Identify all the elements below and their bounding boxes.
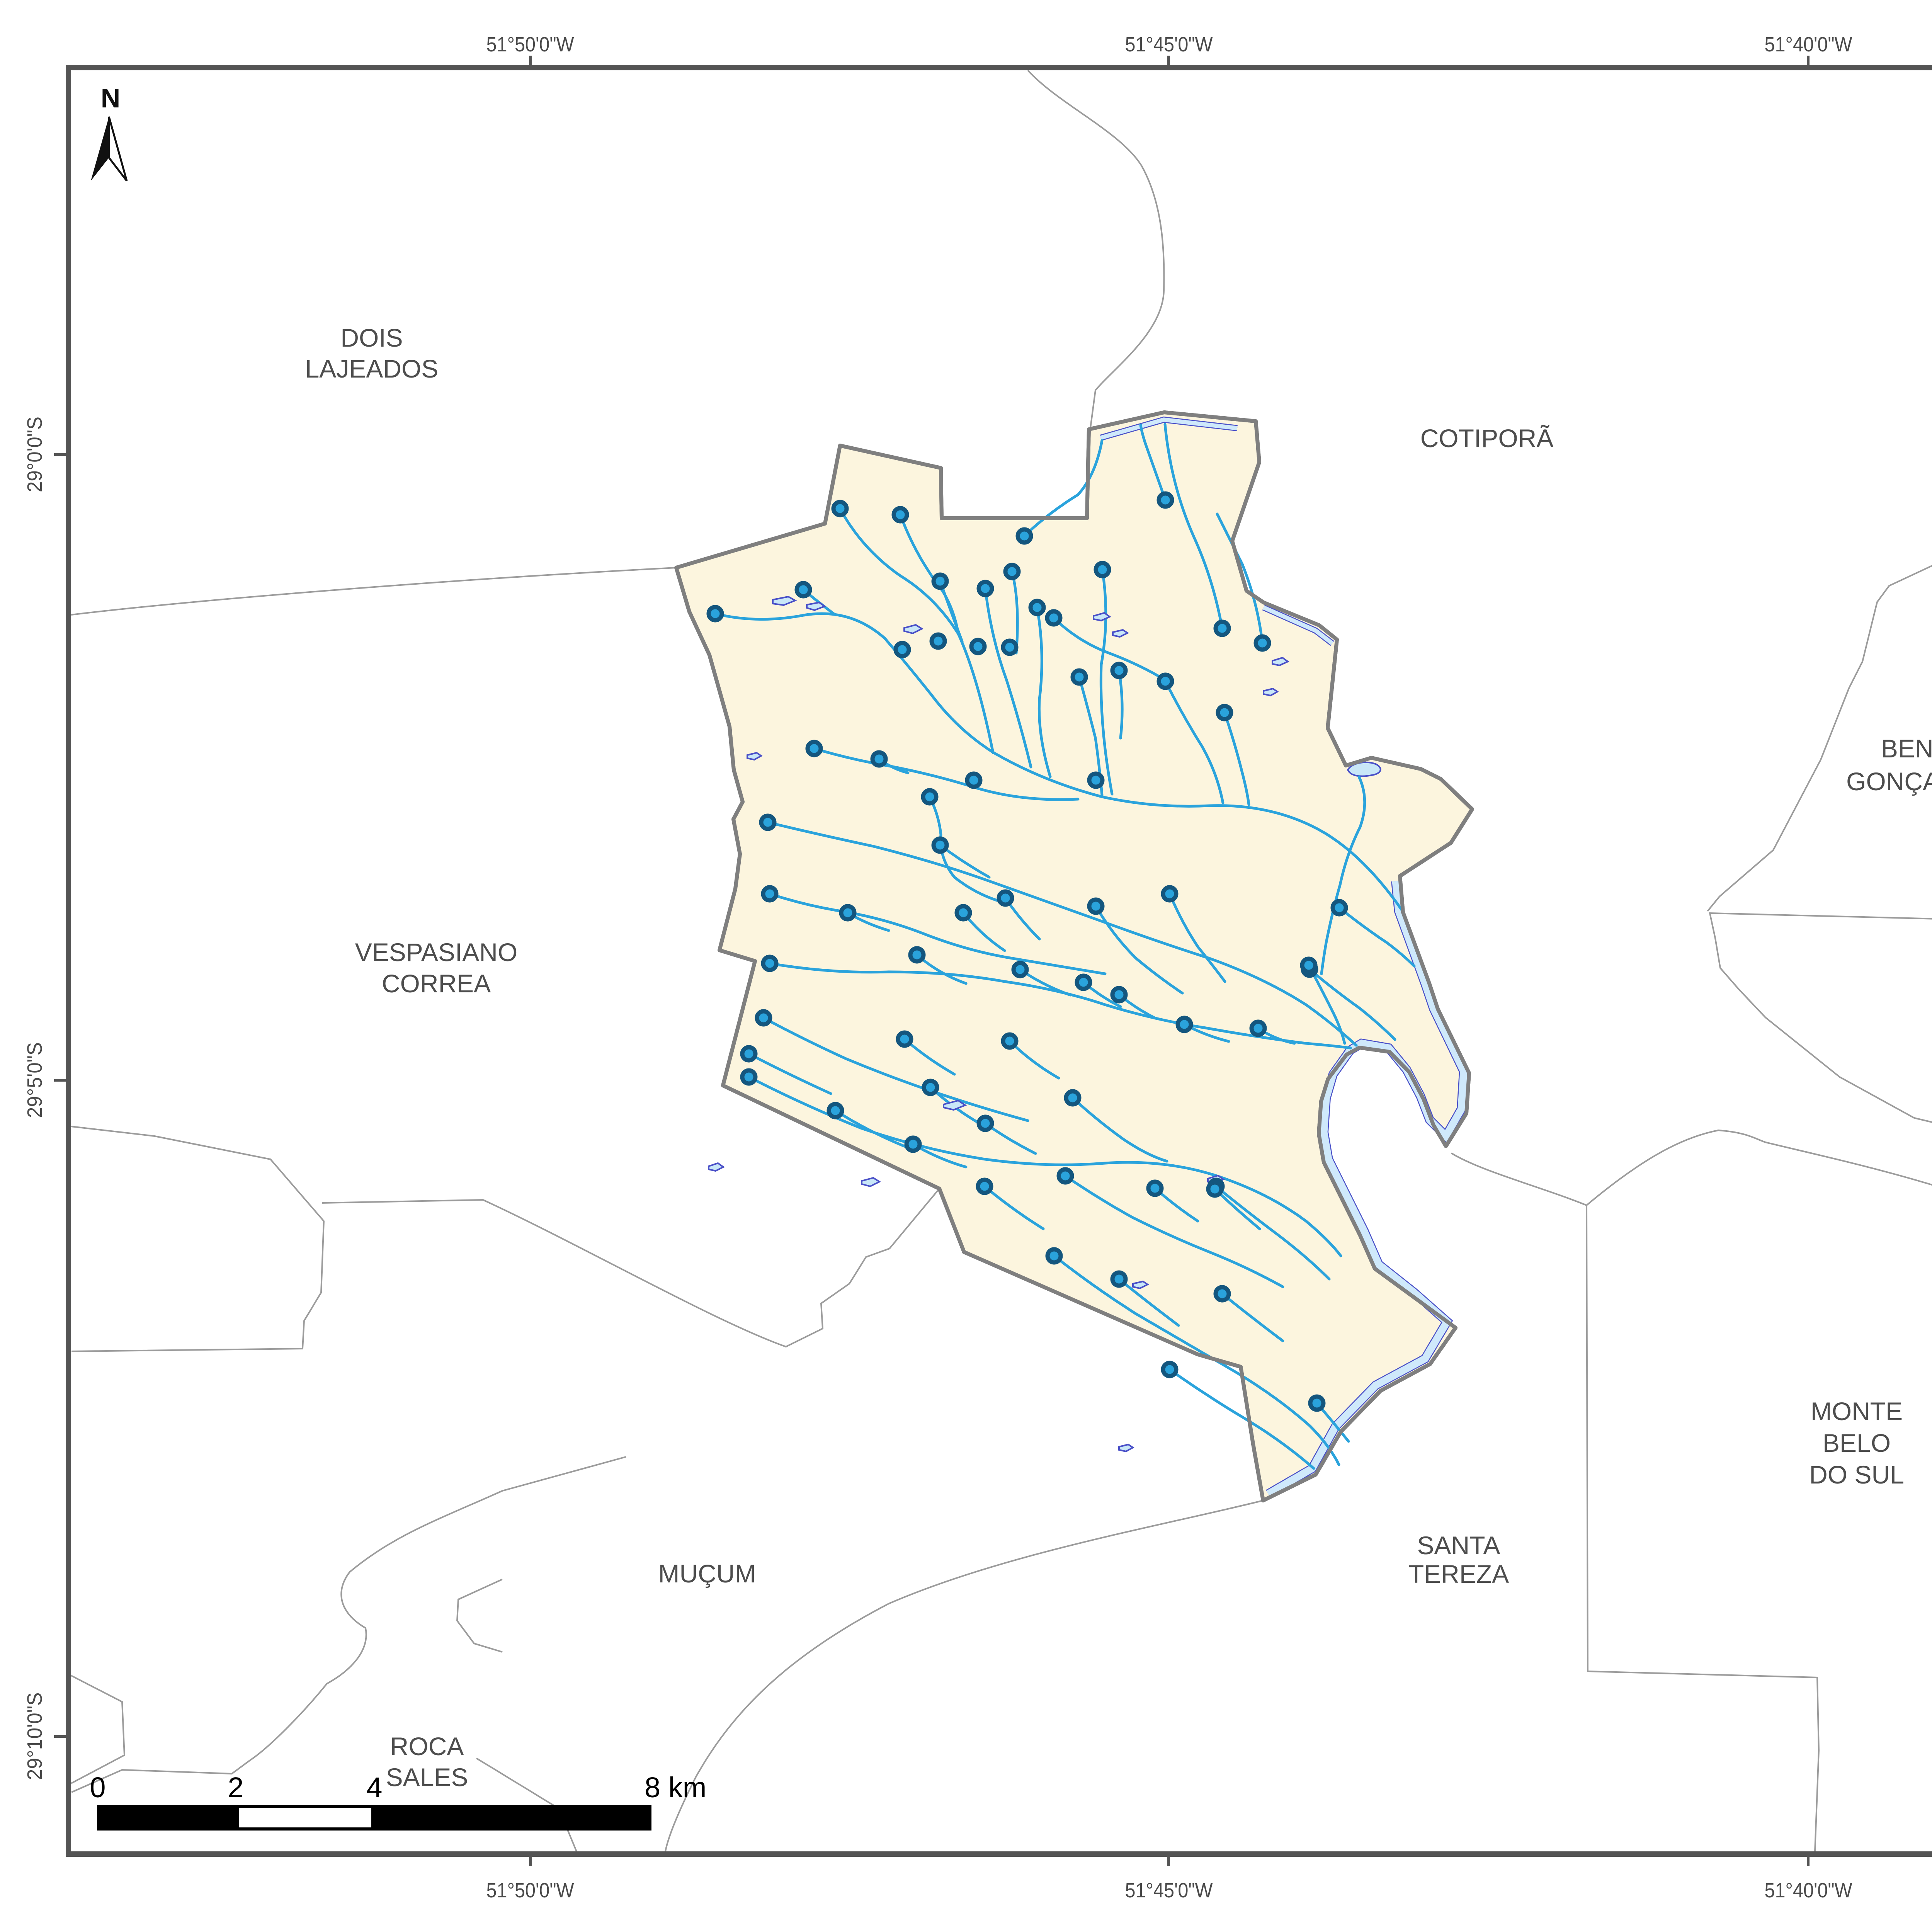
svg-text:51°45'0"W: 51°45'0"W [1125, 33, 1213, 56]
svg-text:29°10'0"S: 29°10'0"S [23, 1693, 46, 1780]
svg-text:LAJEADOS: LAJEADOS [305, 354, 439, 383]
svg-text:VESPASIANO: VESPASIANO [355, 938, 518, 966]
svg-text:MONTE: MONTE [1811, 1397, 1903, 1426]
svg-text:8 km: 8 km [645, 1771, 706, 1803]
svg-text:51°50'0"W: 51°50'0"W [486, 1879, 574, 1902]
svg-text:51°45'0"W: 51°45'0"W [1125, 1879, 1213, 1902]
svg-text:51°40'0"W: 51°40'0"W [1765, 1879, 1852, 1902]
svg-text:BELO: BELO [1823, 1429, 1891, 1457]
svg-text:2: 2 [228, 1771, 243, 1803]
svg-text:29°5'0"S: 29°5'0"S [23, 1042, 46, 1118]
svg-text:CORREA: CORREA [382, 969, 491, 998]
svg-text:SALES: SALES [386, 1763, 468, 1791]
svg-text:0: 0 [90, 1771, 105, 1803]
svg-text:ROCA: ROCA [390, 1732, 464, 1761]
svg-text:51°40'0"W: 51°40'0"W [1765, 33, 1852, 56]
svg-text:MUÇUM: MUÇUM [658, 1559, 756, 1588]
svg-text:4: 4 [366, 1771, 382, 1803]
svg-text:29°0'0"S: 29°0'0"S [23, 417, 46, 492]
svg-text:BENTO: BENTO [1881, 734, 1932, 763]
svg-text:DO SUL: DO SUL [1809, 1460, 1904, 1489]
svg-text:COTIPORÃ: COTIPORÃ [1420, 424, 1554, 453]
svg-text:51°50'0"W: 51°50'0"W [486, 33, 574, 56]
svg-text:SANTA: SANTA [1417, 1531, 1500, 1560]
svg-text:GONÇALVES: GONÇALVES [1846, 767, 1932, 796]
svg-text:N: N [101, 83, 121, 113]
svg-text:TEREZA: TEREZA [1408, 1560, 1509, 1588]
svg-text:DOIS: DOIS [340, 323, 403, 352]
